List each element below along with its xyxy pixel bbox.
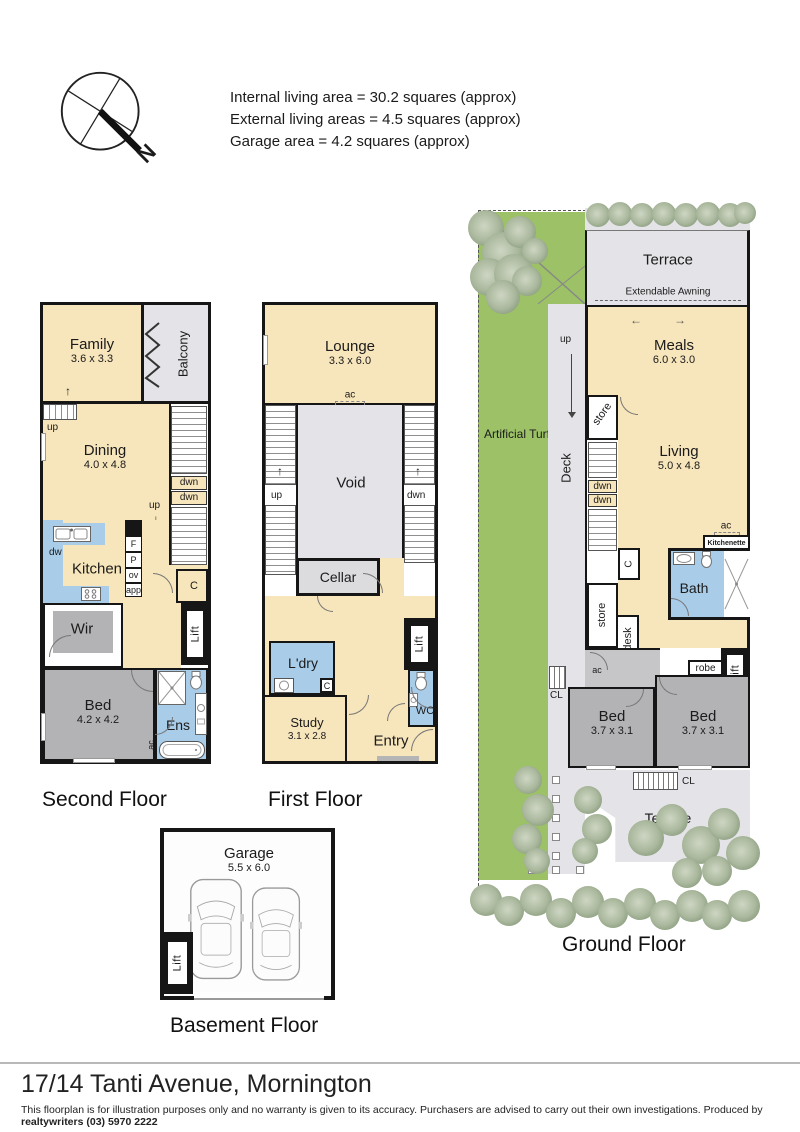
lift: Lift bbox=[168, 942, 187, 984]
room-label-meals: Meals 6.0 x 3.0 bbox=[653, 337, 695, 367]
sink-icon bbox=[53, 526, 91, 547]
lift: Lift bbox=[187, 611, 203, 657]
kitchen-label: Kitchen bbox=[72, 561, 122, 578]
entry-label: Entry bbox=[373, 733, 408, 750]
boundary-fence bbox=[478, 210, 480, 886]
room-dims: 4.2 x 4.2 bbox=[77, 714, 119, 727]
address: 17/14 Tanti Avenue, Mornington bbox=[21, 1070, 372, 1099]
staircase bbox=[43, 404, 77, 420]
room-label-living: Living 5.0 x 4.8 bbox=[658, 443, 700, 473]
tree bbox=[524, 848, 550, 874]
toilet-icon bbox=[700, 551, 713, 573]
shower-icon bbox=[724, 551, 749, 622]
room-dims: 5.0 x 4.8 bbox=[658, 460, 700, 473]
producer-credit: realtywriters (03) 5970 2222 bbox=[21, 1116, 158, 1128]
basement-floor-plan: Garage 5.5 x 6.0 Lift bbox=[160, 828, 335, 1000]
sink-icon bbox=[673, 552, 695, 570]
room-dims: 3.7 x 3.1 bbox=[591, 725, 633, 738]
room-name: Garage bbox=[224, 845, 274, 862]
window bbox=[263, 335, 268, 365]
car-icon bbox=[188, 874, 244, 989]
dwn-label: dwn bbox=[407, 490, 425, 501]
tree bbox=[652, 202, 676, 226]
tree bbox=[486, 280, 520, 314]
entry-threshold bbox=[377, 756, 419, 761]
pantry-label: P bbox=[125, 552, 142, 568]
window bbox=[586, 765, 616, 770]
room-name: Lounge bbox=[325, 338, 375, 355]
basement-floor-title: Basement Floor bbox=[170, 1014, 318, 1038]
room-dims: 3.6 x 3.3 bbox=[70, 353, 114, 366]
direction-arrow: ↑ bbox=[277, 465, 283, 477]
up-label: up bbox=[149, 500, 160, 511]
up-label: up bbox=[560, 334, 571, 345]
ground-floor-title: Ground Floor bbox=[562, 933, 686, 957]
awning-label: Extendable Awning bbox=[626, 287, 711, 298]
lift-label: Lift bbox=[414, 636, 426, 653]
tree bbox=[522, 238, 548, 264]
room-label-dining: Dining 4.0 x 4.8 bbox=[84, 442, 127, 472]
sliding-door-arrow: ← bbox=[630, 314, 642, 326]
staircase bbox=[171, 406, 207, 474]
up-label: up bbox=[47, 422, 58, 433]
first-floor-plan: Lounge 3.3 x 6.0 ac Void up ↑ dwn dwn ↑ … bbox=[262, 302, 438, 764]
oven-label: ov bbox=[125, 568, 142, 583]
room-name: Bed bbox=[591, 708, 633, 725]
room-dims: 3.3 x 6.0 bbox=[325, 355, 375, 368]
laundry-label: L'dry bbox=[288, 655, 318, 671]
stepping-stone bbox=[576, 866, 584, 874]
ac-label: ac bbox=[721, 521, 732, 532]
dwn-label: dwn bbox=[171, 476, 207, 490]
room-label-lounge: Lounge 3.3 x 6.0 bbox=[325, 338, 375, 368]
tree bbox=[608, 202, 632, 226]
closet-cl bbox=[549, 666, 566, 689]
stepping-stone bbox=[552, 814, 560, 822]
stepping-stone bbox=[552, 795, 560, 803]
tree bbox=[522, 794, 554, 826]
tree bbox=[514, 766, 542, 794]
room-name: Living bbox=[658, 443, 700, 460]
tree bbox=[672, 858, 702, 888]
staircase bbox=[404, 505, 435, 563]
appliance-label: app bbox=[125, 583, 142, 597]
direction-arrow bbox=[568, 412, 576, 418]
second-floor-plan: Family 3.6 x 3.3 Balcony Dining 4.0 x 4.… bbox=[40, 302, 211, 764]
external-area-line: External living areas = 4.5 squares (app… bbox=[230, 109, 521, 131]
room-name: Dining bbox=[84, 442, 127, 459]
ac-label: ac bbox=[146, 740, 156, 750]
bath-label: Bath bbox=[680, 580, 709, 596]
room-label-study: Study 3.1 x 2.8 bbox=[288, 716, 326, 742]
lift-label: Lift bbox=[189, 626, 201, 643]
stepping-stone bbox=[552, 833, 560, 841]
staircase bbox=[265, 505, 296, 575]
cl-label: CL bbox=[682, 776, 695, 787]
window bbox=[73, 758, 115, 763]
terrace-top-label: Terrace bbox=[643, 252, 693, 269]
lift-label: Lift bbox=[172, 955, 184, 972]
room-dims: 4.0 x 4.8 bbox=[84, 459, 127, 472]
tree bbox=[572, 838, 598, 864]
tree bbox=[656, 804, 688, 836]
tree bbox=[702, 856, 732, 886]
louvre-window-icon bbox=[143, 321, 163, 394]
room-dims: 6.0 x 3.0 bbox=[653, 354, 695, 367]
up-label: up bbox=[271, 490, 282, 501]
room-label-family: Family 3.6 x 3.3 bbox=[70, 336, 114, 366]
store-label: store bbox=[596, 603, 608, 627]
room-dims: 3.1 x 2.8 bbox=[288, 731, 326, 743]
room-label-garage: Garage 5.5 x 6.0 bbox=[224, 845, 274, 875]
window bbox=[41, 713, 46, 741]
disclaimer: This floorplan is for illustration purpo… bbox=[21, 1104, 786, 1128]
tree bbox=[696, 202, 720, 226]
tree bbox=[574, 786, 602, 814]
dishwasher-label: dw bbox=[49, 547, 62, 558]
room-name: Meals bbox=[653, 337, 695, 354]
lift: Lift bbox=[411, 626, 428, 662]
tree bbox=[586, 203, 610, 227]
path-arrow bbox=[571, 354, 572, 412]
first-floor-title: First Floor bbox=[268, 788, 363, 812]
direction-arrow: ↑ bbox=[65, 385, 71, 397]
cl-label: CL bbox=[550, 690, 563, 701]
ground-floor-plan: Artificial Turf Deck up CL Terrace Exten… bbox=[478, 208, 750, 932]
staircase bbox=[588, 442, 617, 478]
shower-icon bbox=[158, 671, 186, 710]
sliding-door-arrow: → bbox=[674, 314, 686, 326]
tree bbox=[630, 203, 654, 227]
fridge-label: F bbox=[125, 536, 142, 552]
room-label-bed-right: Bed 3.7 x 3.1 bbox=[682, 708, 724, 738]
tree bbox=[728, 890, 760, 922]
turf-label: Artificial Turf bbox=[482, 427, 552, 441]
stepping-stone bbox=[552, 866, 560, 874]
stepping-stone bbox=[552, 852, 560, 860]
tree bbox=[734, 202, 756, 224]
room-label-bed-left: Bed 3.7 x 3.1 bbox=[591, 708, 633, 738]
closet-cl bbox=[633, 772, 678, 790]
room-name: Family bbox=[70, 336, 114, 353]
ac-label: ac bbox=[345, 390, 356, 401]
staircase bbox=[171, 507, 207, 565]
balcony-label: Balcony bbox=[176, 331, 191, 377]
cupboard-label: C bbox=[320, 678, 334, 693]
hallway bbox=[123, 603, 181, 668]
cellar-label: Cellar bbox=[320, 569, 357, 585]
second-floor-title: Second Floor bbox=[42, 788, 167, 812]
toilet-icon bbox=[189, 671, 203, 695]
closet-label: C bbox=[624, 560, 635, 567]
car-icon bbox=[250, 884, 302, 989]
wir-label: Wir bbox=[71, 621, 94, 638]
awning-line bbox=[595, 300, 741, 302]
dwn-label: dwn bbox=[588, 480, 617, 493]
disclaimer-text: This floorplan is for illustration purpo… bbox=[21, 1104, 763, 1116]
window bbox=[41, 433, 46, 461]
divider bbox=[0, 1062, 800, 1064]
closet-label: C bbox=[190, 580, 198, 592]
stepping-stone bbox=[552, 776, 560, 784]
staircase bbox=[588, 509, 617, 551]
area-summary: Internal living area = 30.2 squares (app… bbox=[230, 87, 521, 153]
bathtub-icon bbox=[159, 741, 205, 764]
room-name: Bed bbox=[682, 708, 724, 725]
vanity-icon bbox=[195, 693, 207, 740]
dwn-label: dwn bbox=[588, 494, 617, 507]
tree bbox=[674, 203, 698, 227]
room-name: Bed bbox=[77, 697, 119, 714]
garage-area-line: Garage area = 4.2 squares (approx) bbox=[230, 131, 521, 153]
room-name: Study bbox=[288, 716, 326, 731]
dwn-label: dwn bbox=[171, 491, 207, 505]
room-dims: 3.7 x 3.1 bbox=[682, 725, 724, 738]
garage-door bbox=[194, 992, 324, 1000]
direction-arrow: ↑ bbox=[415, 465, 421, 477]
deck-label: Deck bbox=[559, 453, 574, 483]
tree bbox=[708, 808, 740, 840]
wall bbox=[125, 520, 142, 536]
window bbox=[678, 765, 712, 770]
robe-label: robe bbox=[688, 660, 723, 676]
hallway bbox=[380, 558, 404, 596]
internal-area-line: Internal living area = 30.2 squares (app… bbox=[230, 87, 521, 109]
void-label: Void bbox=[336, 475, 365, 492]
room-label-bed: Bed 4.2 x 4.2 bbox=[77, 697, 119, 727]
floorplan-page: N Internal living area = 30.2 squares (a… bbox=[0, 0, 800, 1132]
